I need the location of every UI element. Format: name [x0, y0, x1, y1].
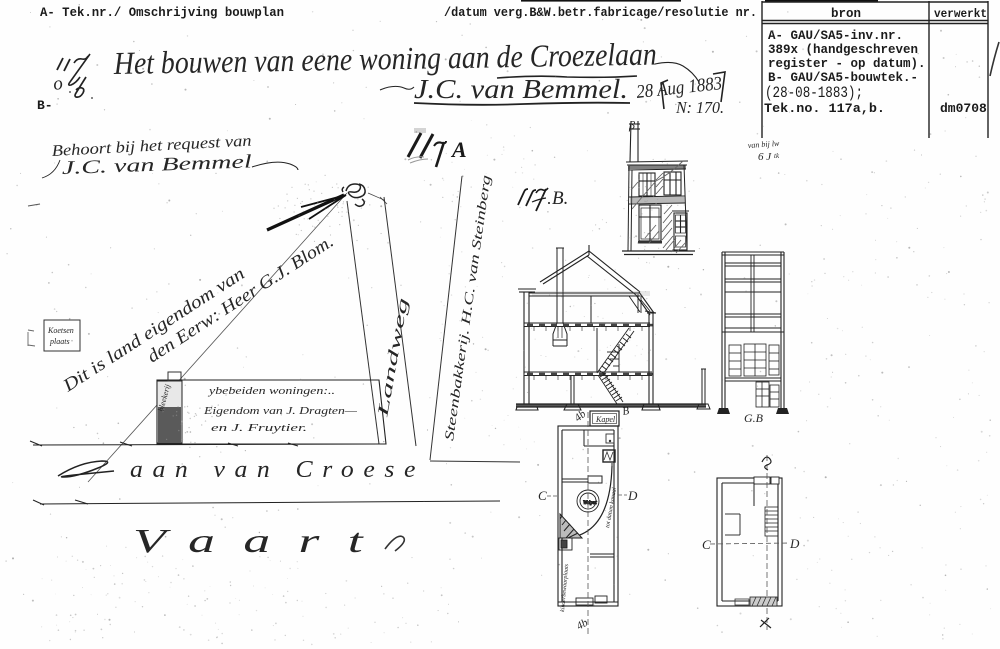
svg-text:Vaart: Vaart	[133, 523, 391, 560]
svg-text:G.B: G.B	[744, 411, 764, 425]
svg-text:bron: bron	[831, 7, 861, 21]
svg-text:/datum verg.B&W.betr.fabricage: /datum verg.B&W.betr.fabricage/resolutie…	[444, 5, 757, 20]
svg-text:B-: B-	[37, 98, 53, 113]
svg-text:A- GAU/SA5-inv.nr.: A- GAU/SA5-inv.nr.	[768, 29, 903, 43]
svg-text:ybebeiden woningen:..: ybebeiden woningen:..	[208, 385, 335, 397]
svg-text:B.: B.	[552, 188, 568, 209]
svg-text:6 J: 6 J	[758, 151, 772, 163]
svg-text:A- Tek.nr./ Omschrijving bouwp: A- Tek.nr./ Omschrijving bouwplan	[40, 6, 284, 20]
svg-text:J.C. van Bemmel.: J.C. van Bemmel.	[414, 74, 628, 104]
svg-text:dm0708: dm0708	[940, 101, 987, 116]
svg-text:389x (handgeschreven: 389x (handgeschreven	[768, 43, 918, 57]
svg-text:(28-08-1883);: (28-08-1883);	[765, 84, 863, 102]
svg-text:D: D	[789, 536, 800, 551]
svg-text:β: β	[628, 118, 635, 132]
svg-text:D: D	[627, 488, 638, 503]
svg-text:tk: tk	[774, 152, 780, 160]
svg-text:Welput: Welput	[583, 501, 597, 506]
svg-text:A: A	[450, 137, 467, 162]
svg-text:plaats: plaats	[49, 337, 70, 346]
svg-text:C: C	[538, 488, 547, 503]
svg-text:register - op datum).: register - op datum).	[768, 57, 926, 71]
svg-text:Tek.no. 117a,b.: Tek.no. 117a,b.	[764, 101, 885, 116]
svg-text:verwerkt: verwerkt	[934, 8, 987, 21]
svg-text:aan van Croese: aan van Croese	[130, 457, 425, 483]
svg-text:Koetsen: Koetsen	[47, 326, 74, 335]
svg-text:N: 170.: N: 170.	[675, 98, 724, 117]
svg-text:C: C	[702, 537, 711, 552]
svg-text:en J. Fruytier.: en J. Fruytier.	[211, 422, 307, 434]
svg-text:B- GAU/SA5-bouwtek.-: B- GAU/SA5-bouwtek.-	[768, 71, 918, 85]
svg-text:Kapel: Kapel	[595, 415, 616, 424]
svg-text:Eigendom van J. Dragten—: Eigendom van J. Dragten—	[203, 405, 358, 417]
